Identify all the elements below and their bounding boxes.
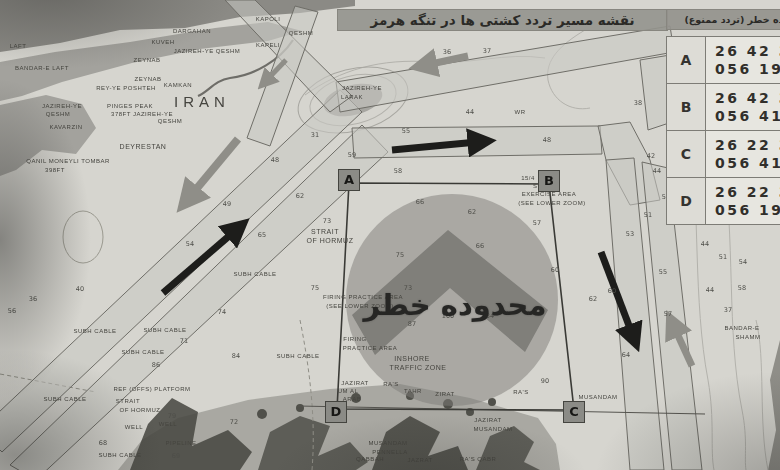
depth-number: 38 bbox=[634, 99, 642, 107]
map-label: PIPELINE bbox=[165, 440, 196, 446]
danger-coordinates-table: محدوده خطر (تردد ممنوع) A26 42 3056 19 3… bbox=[666, 9, 780, 225]
table-header: محدوده خطر (تردد ممنوع) bbox=[666, 9, 780, 30]
depth-number: 58 bbox=[394, 167, 402, 175]
depth-number: 72 bbox=[230, 418, 238, 426]
map-label: KAVARZIN bbox=[49, 124, 82, 130]
depth-number: 73 bbox=[323, 217, 331, 225]
point-letter: C bbox=[667, 131, 706, 177]
longitude-value: 056 41 3 bbox=[715, 154, 780, 172]
map-label: IRAN bbox=[174, 93, 230, 110]
map-label: DARGAHAN bbox=[173, 28, 211, 34]
danger-corner-c: C bbox=[563, 401, 585, 423]
danger-zone-label: محدوده خطر bbox=[364, 288, 547, 322]
map-label: SUBH CABLE bbox=[143, 327, 186, 333]
map-label: ZEYNAB bbox=[134, 76, 161, 82]
depth-number: 64 bbox=[622, 351, 630, 359]
depth-number: 44 bbox=[701, 240, 709, 248]
depth-number: 42 bbox=[647, 152, 655, 160]
depth-number: 48 bbox=[543, 136, 551, 144]
map-label: RA'S QABR bbox=[460, 456, 497, 462]
map-label: KAMKAN bbox=[164, 82, 192, 88]
map-label: RA'S bbox=[513, 389, 528, 395]
map-label: TRAFFIC ZONE bbox=[390, 364, 447, 371]
map-label: MUSANDAM bbox=[578, 394, 617, 400]
map-label: (SEE LOWER ZOOM) bbox=[518, 200, 585, 206]
map-label: TAHR bbox=[404, 388, 422, 394]
map-label: KAPELI bbox=[256, 42, 280, 48]
depth-number: 53 bbox=[626, 230, 634, 238]
map-label: BANDAR-E LAFT bbox=[15, 65, 69, 71]
map-label: SUBH CABLE bbox=[98, 452, 141, 458]
map-label: 15/4 bbox=[521, 175, 535, 181]
map-label: RA'S bbox=[383, 381, 398, 387]
map-label: PINGES PEAK bbox=[107, 103, 153, 109]
depth-number: 65 bbox=[258, 231, 266, 239]
table-body: A26 42 3056 19 3B26 42 3056 41 2C26 22 3… bbox=[666, 36, 780, 225]
longitude-value: 056 41 2 bbox=[715, 107, 780, 125]
map-label: SUBH CABLE bbox=[276, 353, 319, 359]
map-label: JAZIRAT bbox=[341, 380, 368, 386]
depth-number: 60 bbox=[551, 266, 559, 274]
longitude-value: 056 19 3 bbox=[715, 201, 780, 219]
depth-number: 62 bbox=[296, 192, 304, 200]
map-label: WELL bbox=[159, 421, 177, 427]
coordinate-row-c: C26 22 3056 41 3 bbox=[667, 131, 780, 178]
map-label: 398FT bbox=[45, 167, 65, 173]
point-coordinates: 26 22 3056 19 3 bbox=[706, 178, 780, 224]
map-label: BANDAR-E bbox=[724, 325, 759, 331]
depth-number: 49 bbox=[223, 200, 231, 208]
depth-number: 58 bbox=[738, 284, 746, 292]
depth-number: 40 bbox=[76, 285, 84, 293]
depth-number: 31 bbox=[311, 131, 319, 139]
map-label: PENNELLA bbox=[372, 449, 407, 455]
depth-number: 66 bbox=[416, 198, 424, 206]
depth-number: 90 bbox=[541, 377, 549, 385]
depth-number: 54 bbox=[739, 258, 747, 266]
danger-corner-d: D bbox=[325, 401, 347, 423]
longitude-value: 056 19 3 bbox=[715, 60, 780, 78]
map-label: WELL bbox=[125, 424, 143, 430]
map-label: DEYRESTAN bbox=[120, 143, 167, 150]
map-label: STRAIT bbox=[311, 228, 339, 235]
depth-number: 44 bbox=[653, 167, 661, 175]
depth-number: 37 bbox=[724, 306, 732, 314]
map-label: ZEYNAB bbox=[133, 57, 160, 63]
map-label: REY-YE POSHTEH bbox=[96, 85, 155, 91]
map-label: MUSANDAM bbox=[473, 426, 512, 432]
danger-corner-a: A bbox=[338, 169, 360, 191]
depth-number: 86 bbox=[152, 361, 160, 369]
coordinate-row-b: B26 42 3056 41 2 bbox=[667, 84, 780, 131]
depth-number: 51 bbox=[644, 211, 652, 219]
map-label: UM AL bbox=[338, 388, 359, 394]
map-label: OF HORMUZ bbox=[120, 407, 161, 413]
latitude-value: 26 42 3 bbox=[715, 89, 780, 107]
map-label: INSHORE bbox=[394, 355, 429, 362]
danger-corner-b: B bbox=[538, 170, 560, 192]
chart-title: نقشه مسیر تردد کشتی ها در تنگه هرمز bbox=[337, 9, 668, 31]
depth-number: 60 bbox=[608, 287, 616, 295]
map-label: STRAIT bbox=[116, 398, 140, 404]
map-label: PRACTICE AREA bbox=[343, 345, 398, 351]
map-label: MUSANDAM bbox=[368, 440, 407, 446]
map-label: QESHM bbox=[46, 111, 71, 117]
latitude-value: 26 22 3 bbox=[715, 183, 780, 201]
depth-number: 48 bbox=[271, 156, 279, 164]
map-label: JAZIREH-YE bbox=[342, 85, 382, 91]
depth-number: 36 bbox=[29, 295, 37, 303]
map-label: QABBAH bbox=[356, 456, 384, 462]
depth-number: 44 bbox=[706, 286, 714, 294]
point-coordinates: 26 42 3056 19 3 bbox=[706, 37, 780, 83]
depth-number: 57 bbox=[533, 219, 541, 227]
point-letter: B bbox=[667, 84, 706, 130]
depth-number: 54 bbox=[186, 240, 194, 248]
map-label: JAZIREH-YE bbox=[42, 103, 82, 109]
point-coordinates: 26 42 3056 41 2 bbox=[706, 84, 780, 130]
depth-number: 57 bbox=[664, 310, 672, 318]
depth-number: 51 bbox=[719, 253, 727, 261]
depth-number: 66 bbox=[476, 242, 484, 250]
map-layer: KAPOLIQESHMKAPELIDARGAHANKUVEHJAZIREH-YE… bbox=[0, 0, 780, 470]
depth-number: 55 bbox=[659, 268, 667, 276]
depth-number: 84 bbox=[232, 352, 240, 360]
depth-number: 37 bbox=[483, 47, 491, 55]
coordinate-row-a: A26 42 3056 19 3 bbox=[667, 37, 780, 84]
depth-number: 59 bbox=[348, 151, 356, 159]
nautical-chart-photo: KAPOLIQESHMKAPELIDARGAHANKUVEHJAZIREH-YE… bbox=[0, 0, 780, 470]
map-label: OF HORMUZ bbox=[307, 237, 354, 244]
latitude-value: 26 22 3 bbox=[715, 136, 780, 154]
map-label: REF (OFFS) PLATFORM bbox=[113, 386, 190, 392]
map-label: LARAK bbox=[341, 94, 363, 100]
depth-number: 79 bbox=[168, 412, 176, 420]
map-label: JAZIRAT bbox=[474, 417, 501, 423]
coordinate-row-d: D26 22 3056 19 3 bbox=[667, 178, 780, 224]
map-label: QESHM bbox=[289, 30, 314, 36]
depth-number: 71 bbox=[180, 337, 188, 345]
latitude-value: 26 42 3 bbox=[715, 42, 780, 60]
map-label: KAPOLI bbox=[256, 16, 281, 22]
map-label: QANIL MONEYLI TOMBAR bbox=[26, 158, 110, 164]
point-letter: D bbox=[667, 178, 706, 224]
depth-number: 44 bbox=[466, 108, 474, 116]
depth-number: 56 bbox=[8, 307, 16, 315]
depth-number: 55 bbox=[402, 127, 410, 135]
map-label: WR bbox=[515, 109, 526, 115]
depth-number: 68 bbox=[99, 439, 107, 447]
map-label: SUBH CABLE bbox=[73, 328, 116, 334]
map-label: JAZRAT bbox=[407, 457, 432, 463]
depth-number: 75 bbox=[311, 284, 319, 292]
map-label: LAFT bbox=[10, 43, 27, 49]
depth-number: 69 bbox=[172, 452, 180, 460]
depth-number: 74 bbox=[218, 308, 226, 316]
map-label: SUBH CABLE bbox=[121, 349, 164, 355]
map-label: FIRING bbox=[343, 336, 366, 342]
map-label: QESHM bbox=[158, 118, 183, 124]
map-label: JAZIREH-YE QESHM bbox=[174, 48, 241, 54]
depth-number: 62 bbox=[468, 208, 476, 216]
map-label: SHAMM bbox=[736, 334, 761, 340]
point-coordinates: 26 22 3056 41 3 bbox=[706, 131, 780, 177]
depth-number: 62 bbox=[589, 295, 597, 303]
map-label: SUBH CABLE bbox=[43, 396, 86, 402]
map-label: ZIRAT bbox=[435, 391, 454, 397]
map-label: SUBH CABLE bbox=[233, 271, 276, 277]
depth-number: 75 bbox=[396, 251, 404, 259]
map-label: KUVEH bbox=[151, 39, 174, 45]
map-label: 378FT JAZIREH-YE bbox=[111, 111, 173, 117]
depth-number: 36 bbox=[443, 48, 451, 56]
point-letter: A bbox=[667, 37, 706, 83]
